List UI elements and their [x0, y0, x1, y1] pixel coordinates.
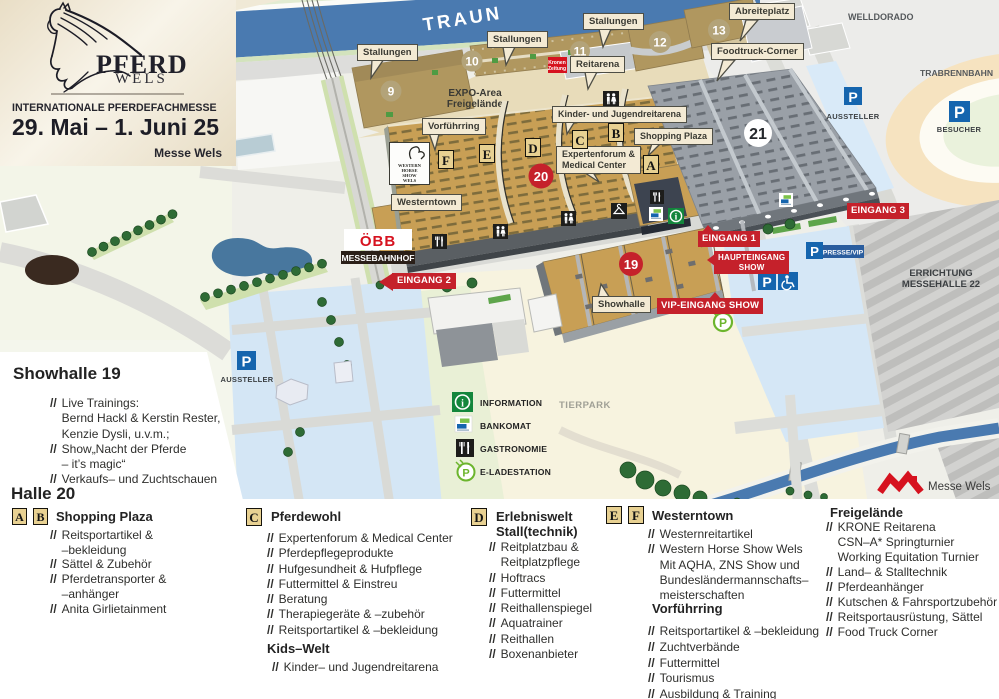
svg-text:i: i — [461, 399, 464, 410]
svg-text:Messe Wels: Messe Wels — [928, 481, 991, 493]
svg-text:INFORMATION: INFORMATION — [480, 398, 542, 408]
svg-text:BANKOMAT: BANKOMAT — [480, 421, 532, 431]
svg-text:GASTRONOMIE: GASTRONOMIE — [480, 444, 547, 454]
svg-text:E-LADESTATION: E-LADESTATION — [480, 467, 551, 477]
svg-text:P: P — [462, 468, 469, 480]
